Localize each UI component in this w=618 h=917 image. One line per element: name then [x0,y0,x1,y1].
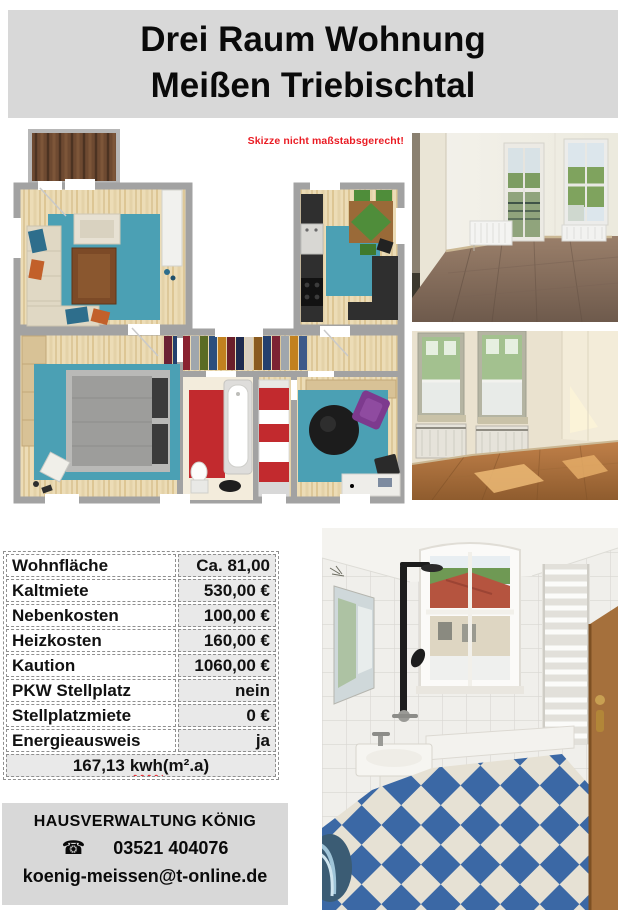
row-label: Kaution [6,654,176,677]
row-label: Kaltmiete [6,579,176,602]
phone-icon: ☎ [62,840,86,858]
row-value: Ca. 81,00 [178,554,276,577]
photo-room-1 [412,133,618,322]
row-label: Heizkosten [6,629,176,652]
row-label: Wohnfläche [6,554,176,577]
table-row: Stellplatzmiete0 € [6,704,276,727]
scale-disclaimer: Skizze nicht maßstabsgerecht! [236,135,404,147]
contact-block: HAUSVERWALTUNG KÖNIG ☎ 03521 404076 koen… [2,803,288,905]
table-row: PKW Stellplatznein [6,679,276,702]
kitchen [297,186,401,328]
table-row: Nebenkosten100,00 € [6,604,276,627]
floorplan-svg [10,128,406,505]
window [478,331,528,424]
floorplan-image [10,128,406,505]
row-value: 160,00 € [178,629,276,652]
row-label: Stellplatzmiete [6,704,176,727]
door [590,606,618,910]
table-row: Heizkosten160,00 € [6,629,276,652]
photo-room-2 [412,331,618,500]
energy-row: 167,13kwh(m².a) [6,754,276,777]
photo-room-2-svg [412,331,618,500]
energy-value: 167,13 [73,756,125,775]
bathroom-room [183,377,253,500]
row-value: nein [178,679,276,702]
lower-rooms [17,332,401,500]
contact-email: koenig-meissen@t-online.de [2,866,288,887]
energy-unit: kwh [130,756,163,775]
child-room-bed [259,380,289,496]
page-title-line-1: Drei Raum Wohnung [8,17,618,63]
table-row: Energieausweisja [6,729,276,752]
radiator [416,424,466,458]
row-label: PKW Stellplatz [6,679,176,702]
table-row: Kaution1060,00 € [6,654,276,677]
window [418,333,466,422]
details-table: WohnflächeCa. 81,00 Kaltmiete530,00 € Ne… [3,551,279,780]
photo-bathroom [322,528,618,910]
row-value: 530,00 € [178,579,276,602]
right-room [298,380,400,496]
contact-company: HAUSVERWALTUNG KÖNIG [2,813,288,831]
window [564,139,608,225]
table-row: WohnflächeCa. 81,00 [6,554,276,577]
row-value: 100,00 € [178,604,276,627]
row-value: 1060,00 € [178,654,276,677]
contact-phone-row: ☎ 03521 404076 [2,838,288,859]
balcony [30,131,118,183]
row-value: ja [178,729,276,752]
table-row: Kaltmiete530,00 € [6,579,276,602]
title-block: Drei Raum Wohnung Meißen Triebischtal [8,10,618,118]
radiator [562,225,606,241]
photo-bathroom-svg [322,528,618,910]
living-room [17,186,189,328]
row-label: Energieausweis [6,729,176,752]
contact-phone: 03521 404076 [113,838,228,859]
towel-radiator [542,564,590,744]
row-label: Nebenkosten [6,604,176,627]
photo-room-1-svg [412,133,618,322]
energy-unit-rest: (m².a) [163,756,209,775]
page-title-line-2: Meißen Triebischtal [8,63,618,109]
row-value: 0 € [178,704,276,727]
energy-value-cell: 167,13kwh(m².a) [6,754,276,777]
